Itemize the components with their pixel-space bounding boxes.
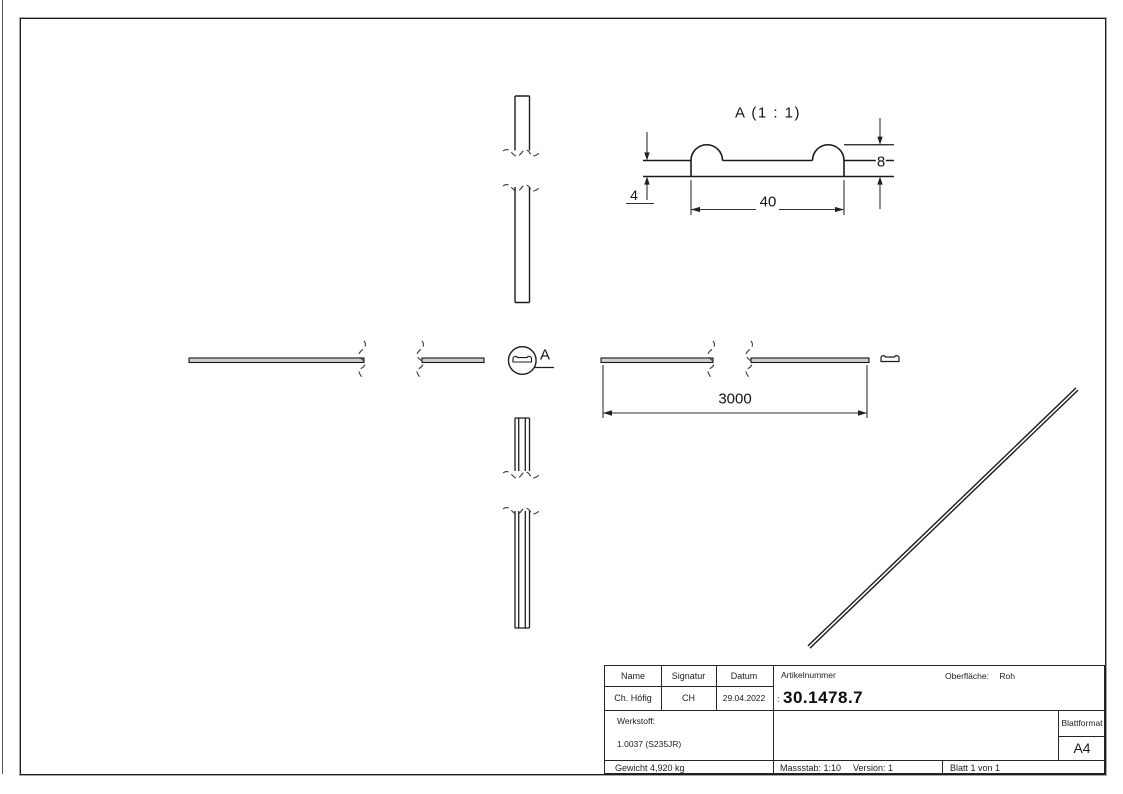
top-view [515, 96, 530, 303]
left-bump-arc [691, 145, 723, 161]
detail-callout-label: A [539, 347, 551, 364]
bottom-view-break-lines [503, 471, 542, 514]
tb-oberflaeche-value: Roh [999, 671, 1015, 681]
tb-artikelnummer-label: Artikelnummer [781, 670, 836, 680]
tb-header-signatur: Signatur [661, 666, 716, 686]
dim-width-40: 40 [759, 194, 778, 211]
drawing-linework [21, 19, 1105, 774]
cad-drawing-screenshot: A (1 : 1) 8 4 40 3000 A Name Signatur Da… [0, 0, 1123, 794]
tb-massstab: Massstab: 1:10 [780, 763, 841, 773]
tb-vline [773, 666, 774, 773]
tb-version: Version: 1 [853, 763, 893, 773]
dim-length-3000: 3000 [717, 391, 752, 408]
profile-end-view-small [513, 356, 532, 362]
tb-header-name: Name [605, 666, 661, 686]
tb-blatt: Blatt 1 von 1 [950, 763, 1000, 773]
front-view-right-break-lines [708, 341, 753, 380]
profile-end-view-right [881, 356, 899, 362]
tb-blattformat-label: Blattformat [1058, 710, 1106, 735]
title-block: Name Signatur Datum Ch. Höfig CH 29.04.2… [604, 665, 1105, 774]
detail-view-dim-lines [626, 118, 880, 215]
dim-height-8: 8 [876, 154, 886, 171]
tb-oberflaeche-label: Oberfläche: [945, 671, 989, 681]
tb-artikelnummer-value: 30.1478.7 [783, 688, 863, 708]
right-bump-arc [813, 145, 845, 161]
tb-oberflaeche: Oberfläche: Roh [945, 671, 1015, 681]
front-view-left-break-lines [359, 341, 424, 380]
tb-value-signatur: CH [661, 686, 716, 710]
tb-header-datum: Datum [716, 666, 772, 686]
detail-view-title: A (1 : 1) [734, 105, 802, 122]
front-view-right [601, 358, 869, 363]
tb-werkstoff-label: Werkstoff: [617, 716, 655, 726]
isometric-view [809, 389, 1077, 647]
tb-hline [605, 710, 1104, 711]
tb-werkstoff-value: 1.0037 (S235JR) [617, 739, 681, 749]
dim-thickness-4: 4 [629, 187, 639, 203]
tb-vline [942, 760, 943, 775]
window-edge-line [2, 0, 3, 774]
tb-blattformat-value: A4 [1058, 736, 1106, 760]
drawing-sheet: A (1 : 1) 8 4 40 3000 A Name Signatur Da… [20, 18, 1106, 775]
tb-artikelnummer-prefix: : [777, 694, 780, 704]
top-view-break-lines [503, 149, 542, 191]
bottom-view [515, 418, 530, 628]
tb-value-datum: 29.04.2022 [716, 686, 772, 710]
tb-hline [605, 760, 1104, 761]
front-view-left [189, 358, 484, 363]
tb-gewicht: Gewicht 4,920 kg [615, 763, 685, 773]
tb-value-name: Ch. Höfig [605, 686, 661, 710]
detail-view-outline [643, 145, 894, 177]
